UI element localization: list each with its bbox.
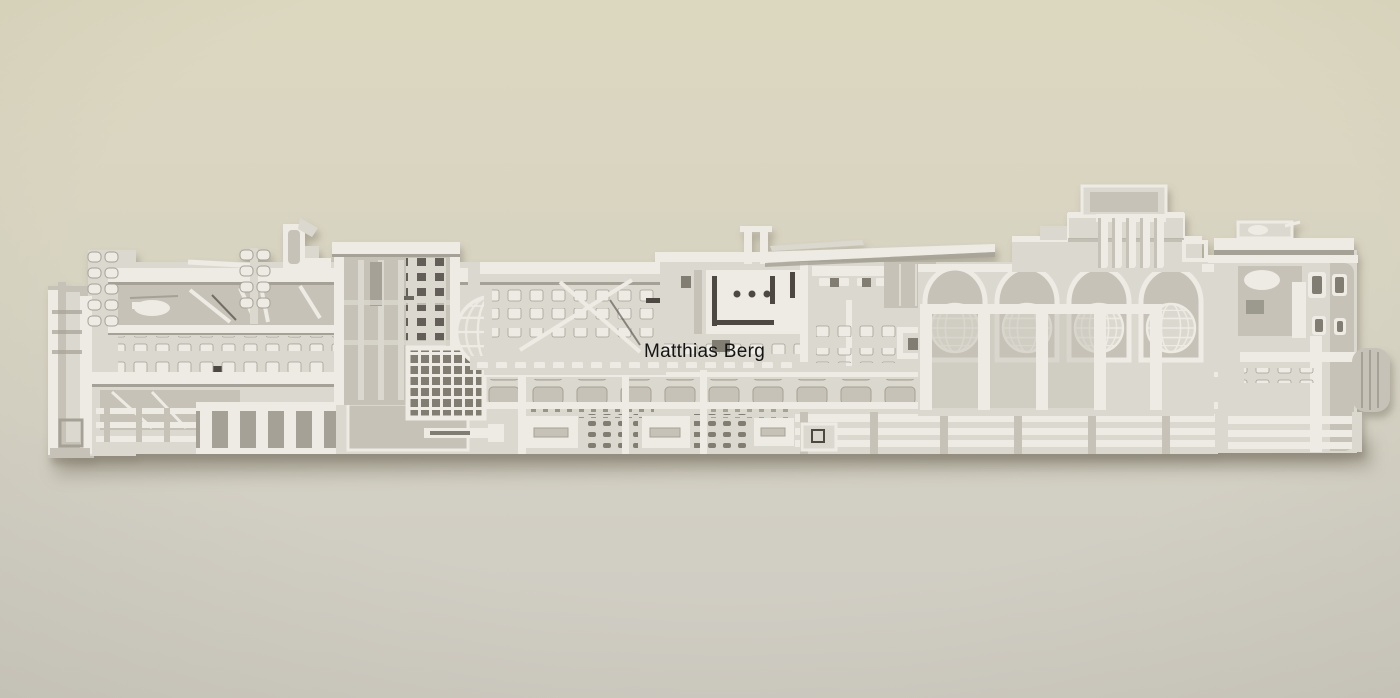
end-cap (1352, 348, 1390, 412)
left-edge-rails (96, 408, 196, 442)
deck-perforated-panel (582, 414, 638, 450)
photo-of-relief-sculpture: Matthias Berg (0, 0, 1400, 698)
arched-gallery (918, 264, 1214, 416)
watermark-text: Matthias Berg (644, 341, 765, 362)
rooftop-machine (1238, 222, 1300, 238)
deck-slot-panel (642, 416, 690, 448)
left-mast (48, 282, 92, 458)
tower-pillar (370, 262, 382, 306)
colonnade (196, 402, 336, 454)
deck-slot-panel (524, 416, 578, 448)
hanging-pipes (1096, 214, 1166, 268)
dark-slot (646, 298, 660, 303)
deck-slot-panel (754, 418, 794, 446)
deck-square-ring-box (802, 424, 836, 450)
dotted-panel (706, 270, 802, 334)
right-tower (1208, 222, 1362, 453)
tower-lower-slats (1228, 412, 1362, 452)
